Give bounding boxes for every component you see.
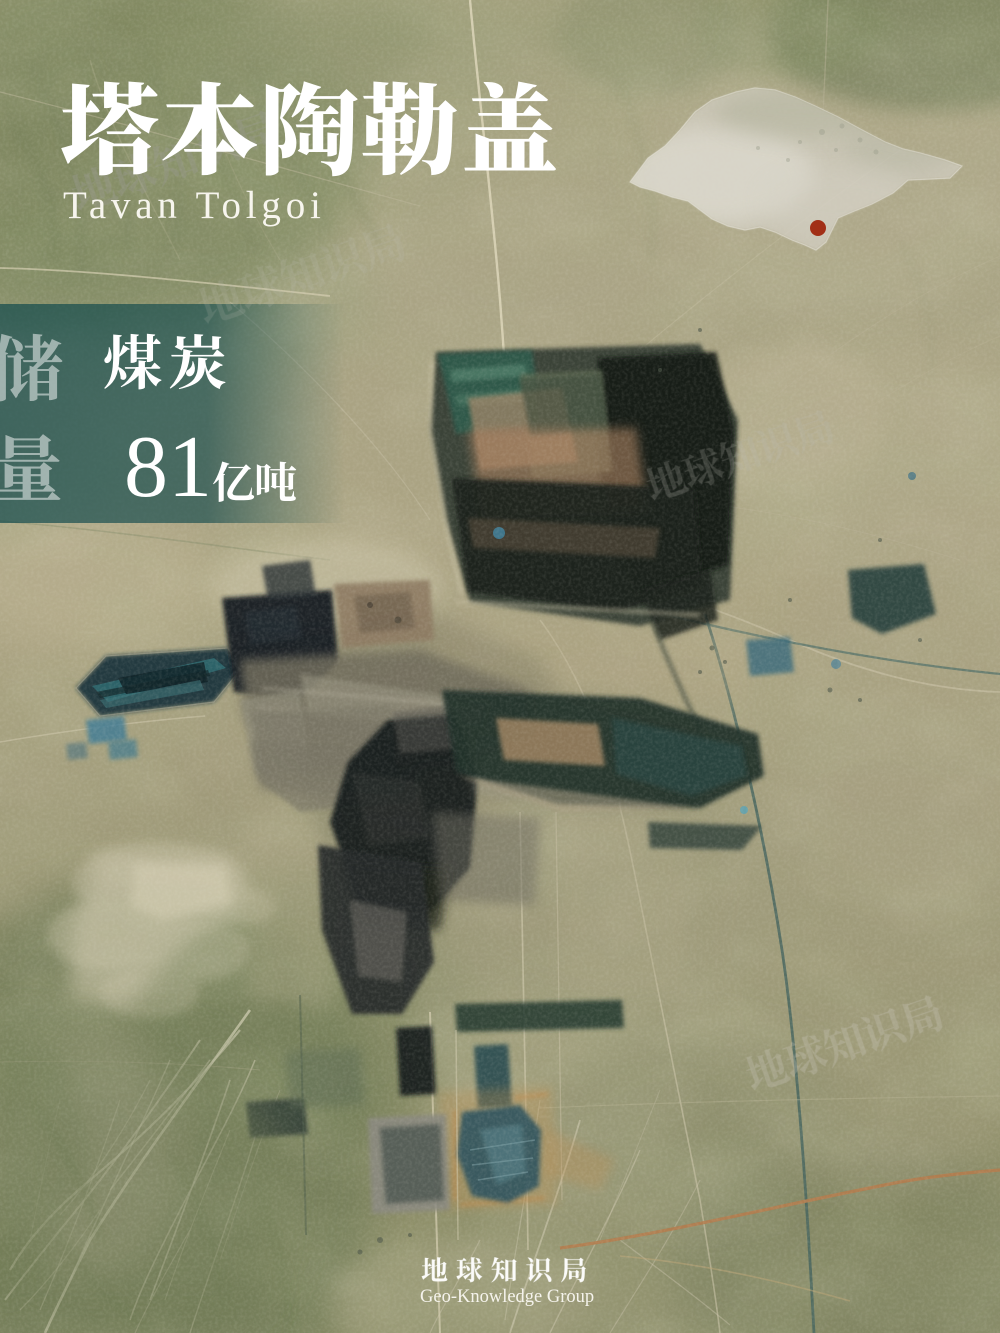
svg-text:Tavan Tolgoi: Tavan Tolgoi — [63, 184, 326, 227]
svg-text:81: 81 — [124, 419, 212, 516]
svg-text:Geo-Knowledge Group: Geo-Knowledge Group — [420, 1287, 594, 1307]
